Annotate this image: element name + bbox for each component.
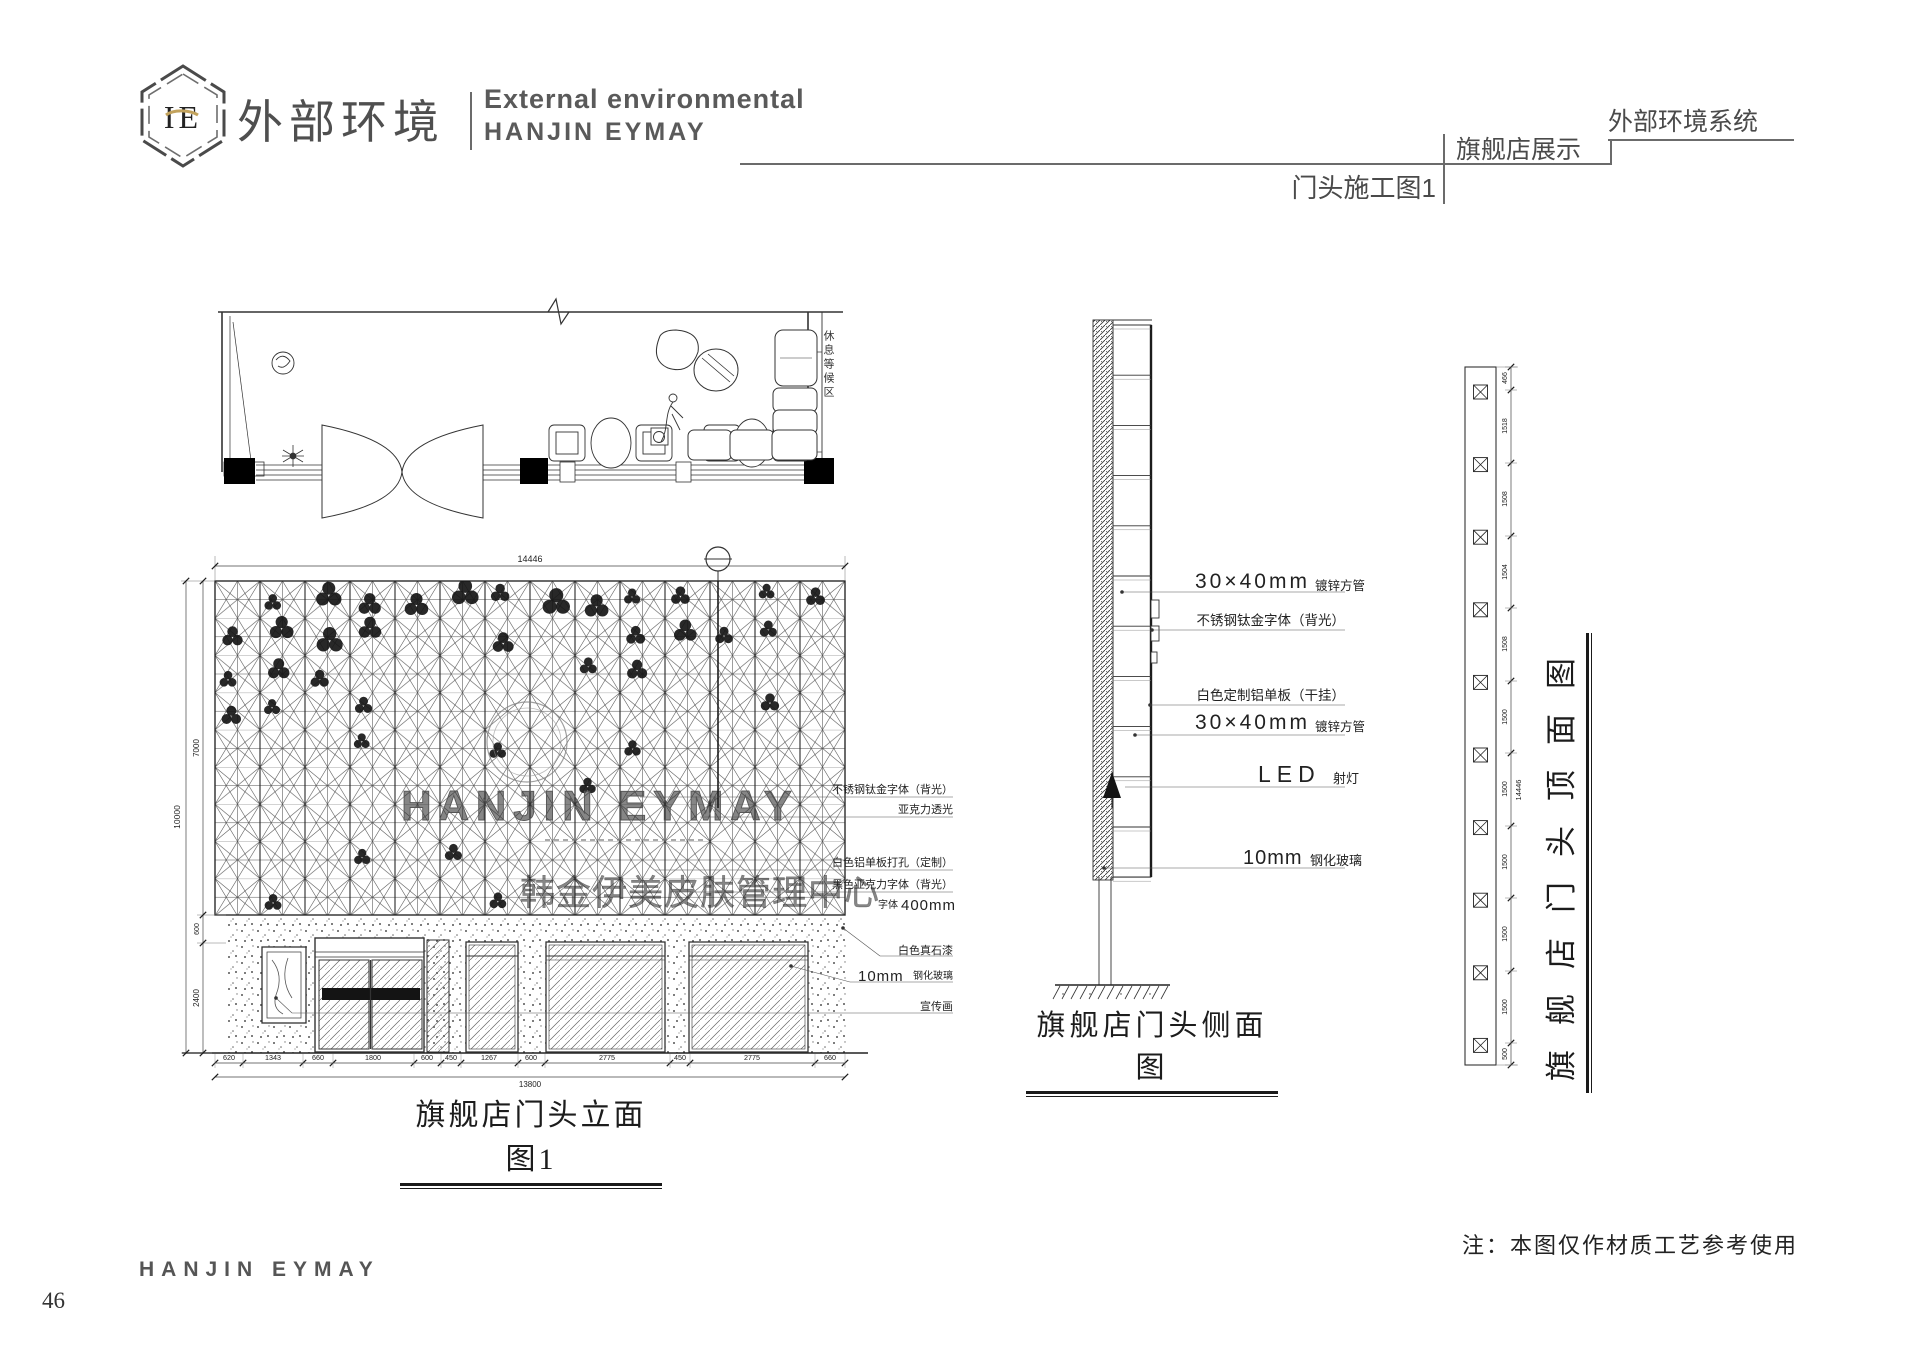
top-view-dims: 466 1518 1508 1504 1508 1500 1500 1500 1… (1502, 372, 1523, 1060)
svg-text:1508: 1508 (1502, 636, 1509, 652)
page: IE 外部环境 External environmental HANJIN EY… (0, 0, 1920, 1357)
svg-text:500: 500 (1502, 1048, 1509, 1060)
dim-bottom-total: 13800 (519, 1080, 542, 1089)
svg-text:1518: 1518 (1502, 418, 1509, 434)
title-rule-thin (1591, 633, 1592, 1093)
ground-hatch (1053, 986, 1168, 999)
callout-steel-font: 不锈钢钛金字体（背光） (832, 782, 953, 796)
dim-height-total: 10000 (172, 805, 182, 829)
logo-en-line2: HANJIN EYMAY (484, 118, 707, 147)
svg-text:1500: 1500 (1502, 854, 1509, 870)
side-title-block: 旗舰店门头侧面图 (1026, 1002, 1278, 1097)
svg-text:450: 450 (445, 1053, 457, 1062)
dim-left-2: 2400 (192, 989, 201, 1007)
svg-text:2775: 2775 (744, 1053, 760, 1062)
poster-frame (262, 947, 306, 1023)
side-view-drawing: 30×40mm 镀锌方管 不锈钢钛金字体（背光） 白色定制铝单板（干挂） 30×… (1020, 300, 1400, 1070)
column (224, 458, 255, 484)
floor-plan-drawing (200, 296, 860, 541)
title-rule-thick (400, 1183, 662, 1186)
svg-text:466: 466 (1502, 372, 1509, 384)
logo-cn-text: 外部环境 (237, 86, 445, 152)
header-rule-top (1608, 139, 1794, 141)
callout-glass-big: 10mm (858, 968, 904, 985)
svg-text:1500: 1500 (1502, 999, 1509, 1015)
sidelite (427, 940, 449, 1052)
svg-text:1508: 1508 (1502, 491, 1509, 507)
elevation-title: 旗舰店门头立面图1 (400, 1090, 662, 1178)
breadcrumb-level1: 外部环境系统 (1608, 102, 1758, 138)
label-tube2-small: 镀锌方管 (1315, 719, 1365, 734)
svg-text:1504: 1504 (1502, 564, 1509, 580)
svg-text:600: 600 (421, 1053, 433, 1062)
label-alu: 白色定制铝单板（干挂） (1197, 687, 1346, 703)
logo-en-line1: External environmental (484, 84, 805, 115)
breadcrumb-level3: 门头施工图1 (1240, 168, 1436, 205)
svg-text:660: 660 (824, 1053, 836, 1062)
title-rule-thin (400, 1188, 662, 1189)
side-callout-labels: 30×40mm 镀锌方管 不锈钢钛金字体（背光） 白色定制铝单板（干挂） 30×… (1195, 570, 1365, 869)
top-view-title: 旗舰店门头顶面图 (1536, 621, 1581, 1093)
dim-total: 14446 (1514, 780, 1523, 801)
svg-text:1343: 1343 (265, 1053, 281, 1062)
label-tube-small: 镀锌方管 (1315, 578, 1365, 593)
double-door (322, 425, 483, 518)
column (804, 458, 834, 484)
side-title: 旗舰店门头侧面图 (1026, 1002, 1278, 1086)
elevation-drawing: HANJIN EYMAY 韩金伊美皮肤管理中心 (140, 540, 1020, 1140)
label-glass-small: 钢化玻璃 (1310, 853, 1362, 868)
elevation-title-block: 旗舰店门头立面图1 (400, 1090, 662, 1189)
label-tube2-big: 30×40mm (1195, 711, 1310, 734)
storefront (182, 917, 868, 1053)
label-led-big: LED (1258, 761, 1321, 787)
logo-divider (470, 92, 472, 150)
label-steel-font: 不锈钢钛金字体（背光） (1197, 613, 1346, 628)
callout-glass-small: 钢化玻璃 (913, 969, 953, 982)
footer-brand: HANJIN EYMAY (139, 1258, 380, 1282)
svg-text:1267: 1267 (481, 1053, 497, 1062)
label-tube-big: 30×40mm (1195, 570, 1310, 593)
svg-text:1500: 1500 (1502, 926, 1509, 942)
display-windows (466, 942, 808, 1052)
breadcrumb-divider (1443, 134, 1445, 204)
breadcrumb-step (1610, 140, 1612, 165)
callout-font-size: 400mm (901, 897, 956, 914)
label-led-small: 射灯 (1333, 771, 1359, 786)
column (520, 458, 548, 484)
svg-text:450: 450 (674, 1053, 686, 1062)
watermark-cn: 韩金伊美皮肤管理中心 (520, 874, 880, 913)
entry-door (315, 938, 424, 1052)
fan-plant-icon (282, 445, 304, 467)
svg-text:1800: 1800 (365, 1053, 381, 1062)
sofa (688, 330, 817, 460)
callout-poster: 宣传画 (920, 999, 953, 1013)
callout-acrylic: 亚克力透光 (898, 802, 953, 816)
dim-bottom-chain: 620 1343 660 1800 600 450 1267 600 2775 … (223, 1053, 836, 1062)
top-view-title-block: 旗舰店门头顶面图 (1536, 621, 1592, 1093)
callout-alu-panel: 白色铝单板打孔（定制） (832, 855, 953, 869)
title-rule-thin (1026, 1096, 1278, 1097)
dim-left-0: 7000 (192, 739, 201, 757)
title-rule-thick (1586, 633, 1589, 1093)
svg-text:2775: 2775 (599, 1053, 615, 1062)
title-rule-thick (1026, 1091, 1278, 1094)
label-glass-big: 10mm (1243, 847, 1303, 869)
watermark-en: HANJIN EYMAY (401, 782, 799, 829)
breadcrumb-level2: 旗舰店展示 (1456, 130, 1581, 166)
page-number: 46 (42, 1288, 65, 1314)
callout-stone-paint: 白色真石漆 (898, 943, 953, 957)
dim-left-1: 600 (194, 923, 201, 935)
svg-text:1500: 1500 (1502, 709, 1509, 725)
plan-area-label: 休息等候区 (820, 330, 836, 400)
callout-black-acrylic: 黑色亚克力字体（背光） (832, 877, 953, 891)
logo-monogram: IE (164, 99, 202, 135)
svg-text:620: 620 (223, 1053, 235, 1062)
reference-note: 注：本图仅作材质工艺参考使用 (1462, 1228, 1798, 1260)
svg-text:660: 660 (312, 1053, 324, 1062)
decor-shape (656, 330, 698, 370)
brand-hexagon-logo-icon: IE (136, 60, 232, 174)
svg-text:1500: 1500 (1502, 781, 1509, 797)
plant-icon (272, 352, 294, 374)
dim-top: 14446 (517, 554, 542, 564)
svg-text:600: 600 (525, 1053, 537, 1062)
callout-font-prefix: 字体 (878, 898, 898, 911)
